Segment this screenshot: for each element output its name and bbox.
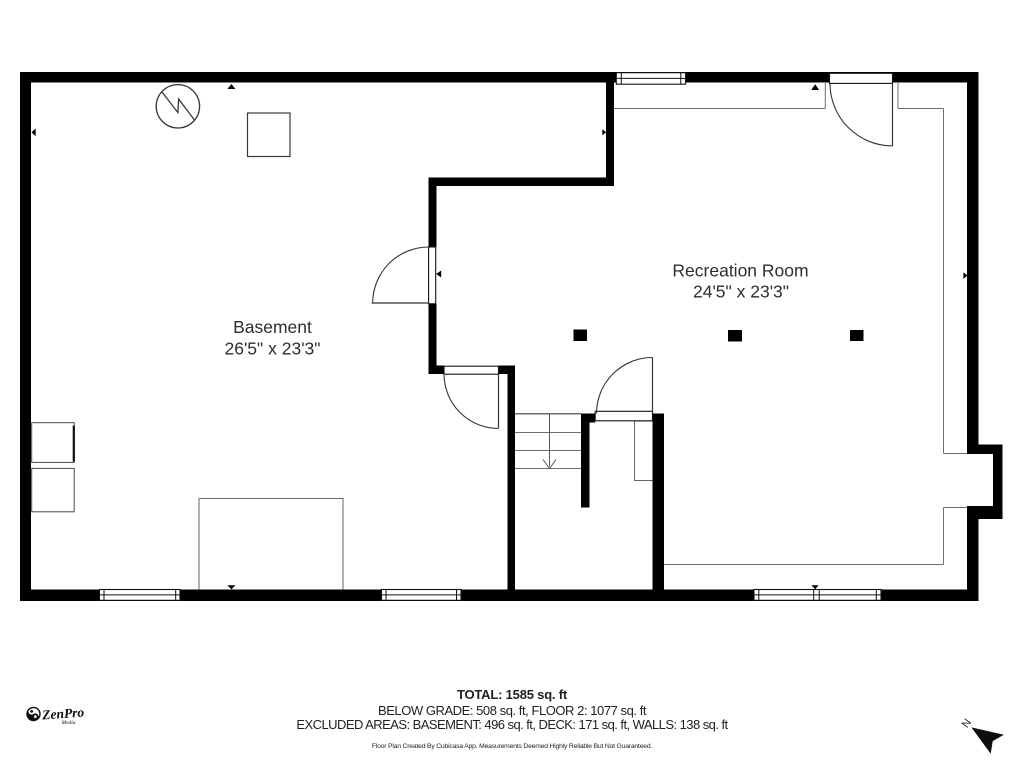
svg-text:Basement: Basement — [233, 317, 312, 337]
svg-text:Recreation Room: Recreation Room — [672, 261, 808, 281]
svg-text:26'5" x 23'3": 26'5" x 23'3" — [225, 339, 321, 359]
svg-text:24'5" x 23'3": 24'5" x 23'3" — [693, 282, 789, 302]
